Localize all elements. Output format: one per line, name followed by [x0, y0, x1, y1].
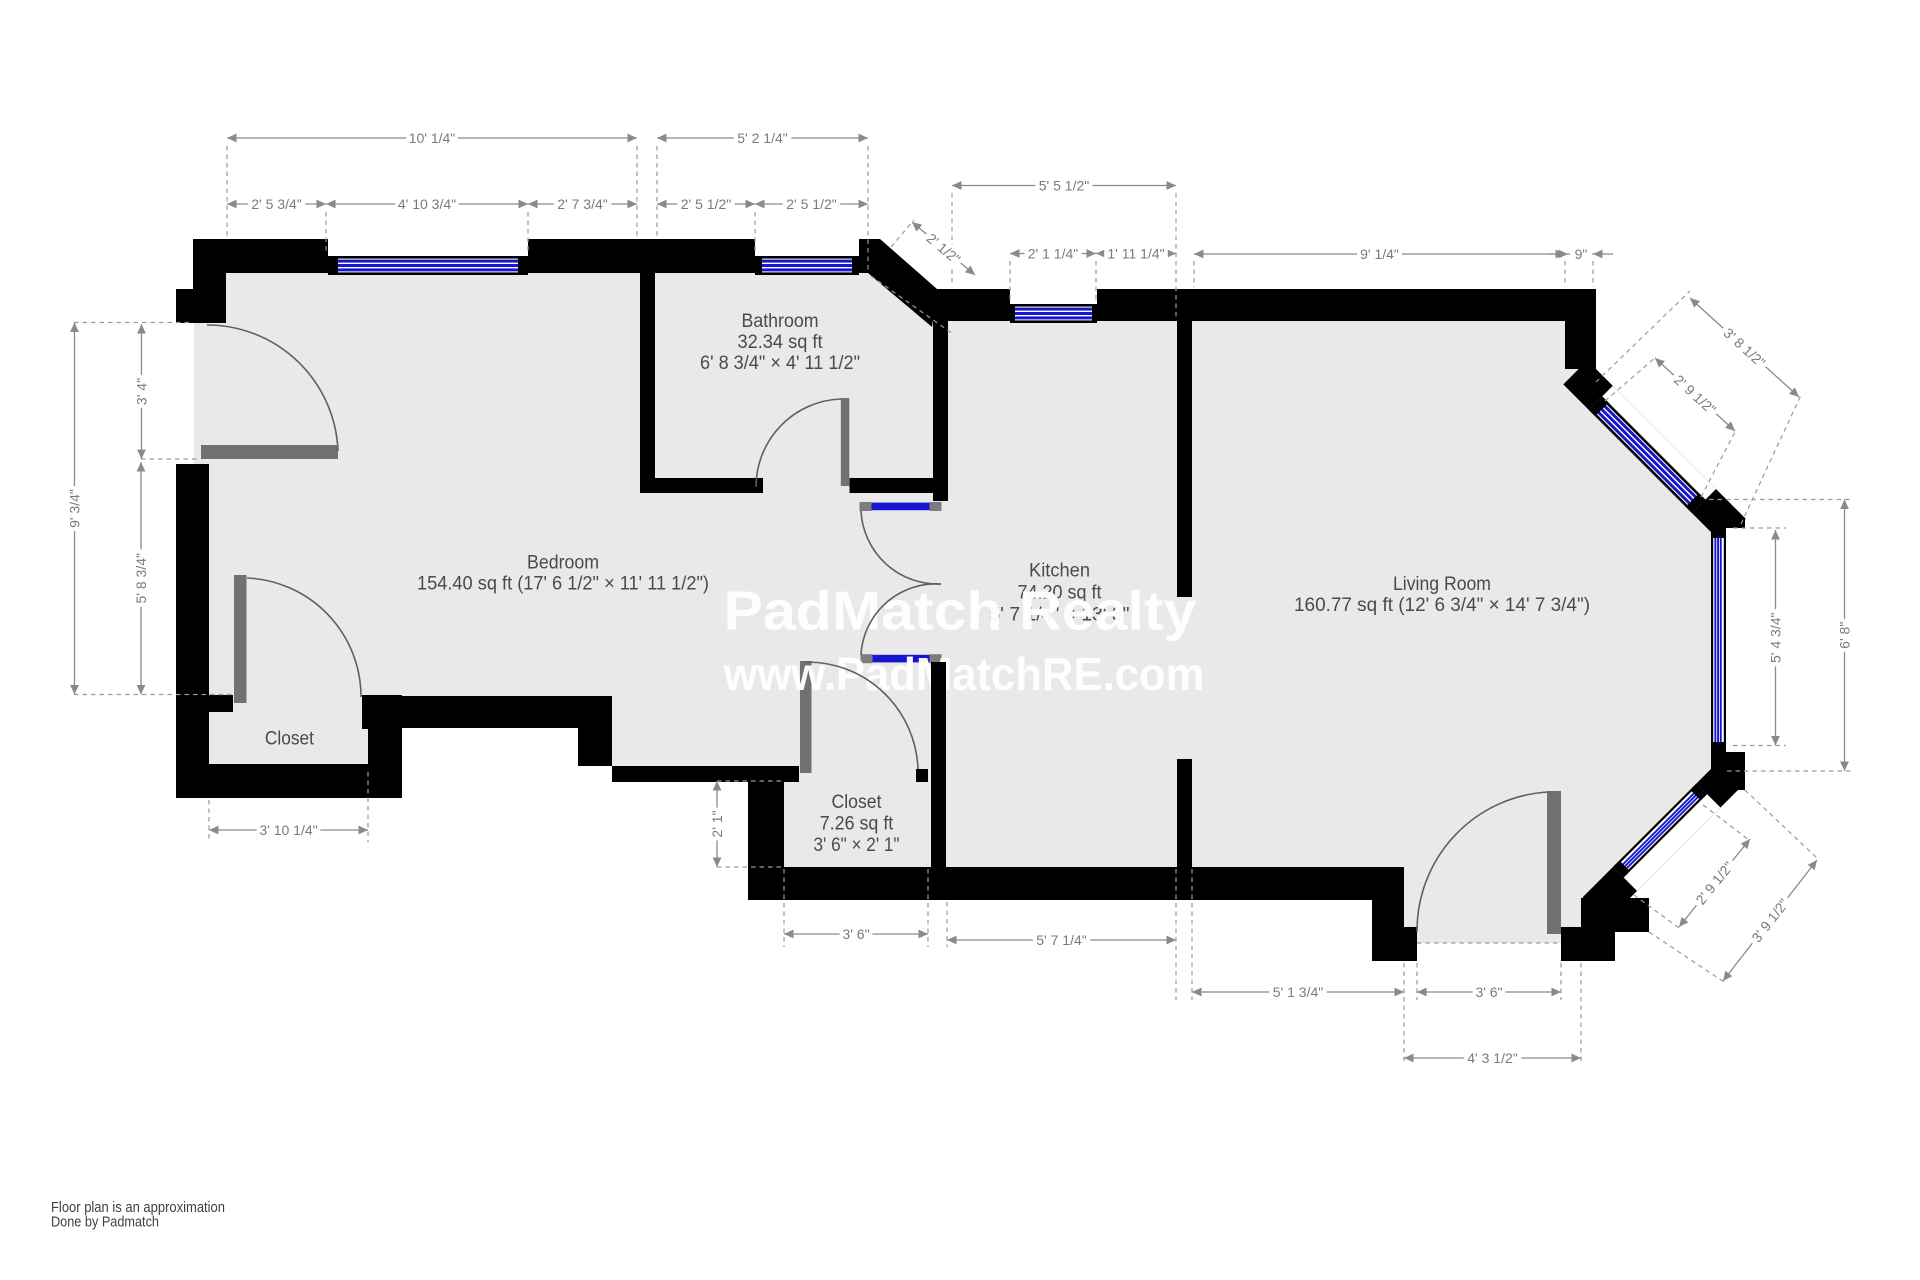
- svg-text:9": 9": [1575, 246, 1588, 262]
- svg-text:1' 11 1/4": 1' 11 1/4": [1107, 246, 1164, 262]
- svg-text:9' 3/4": 9' 3/4": [67, 489, 83, 528]
- svg-text:2' 7 3/4": 2' 7 3/4": [557, 196, 607, 212]
- svg-text:3' 6": 3' 6": [842, 926, 869, 942]
- svg-text:2' 5 1/2": 2' 5 1/2": [786, 196, 836, 212]
- svg-text:5' 4 3/4": 5' 4 3/4": [1768, 612, 1784, 662]
- svg-text:Closet: Closet: [265, 729, 315, 750]
- svg-text:Living Room: Living Room: [1393, 574, 1491, 595]
- svg-text:2' 5 3/4": 2' 5 3/4": [251, 196, 301, 212]
- svg-text:3' 10 1/4": 3' 10 1/4": [259, 822, 317, 838]
- svg-text:www.PadMatchRE.com: www.PadMatchRE.com: [723, 648, 1205, 700]
- svg-text:Kitchen: Kitchen: [1029, 561, 1090, 582]
- svg-text:160.77 sq ft (12' 6 3/4" × 14': 160.77 sq ft (12' 6 3/4" × 14' 7 3/4"): [1294, 595, 1590, 616]
- svg-text:6' 8": 6' 8": [1837, 622, 1853, 649]
- svg-text:PadMatch Realty: PadMatch Realty: [724, 580, 1197, 642]
- svg-text:5' 8 3/4": 5' 8 3/4": [133, 553, 149, 603]
- svg-text:5' 1 3/4": 5' 1 3/4": [1273, 984, 1323, 1000]
- svg-text:3' 6" × 2' 1": 3' 6" × 2' 1": [814, 835, 900, 856]
- svg-text:5' 5 1/2": 5' 5 1/2": [1039, 178, 1089, 194]
- svg-text:9' 1/4": 9' 1/4": [1360, 246, 1399, 262]
- svg-text:7.26 sq ft: 7.26 sq ft: [820, 814, 894, 835]
- svg-text:Bathroom: Bathroom: [742, 311, 819, 332]
- svg-text:154.40 sq ft (17' 6 1/2" × 11': 154.40 sq ft (17' 6 1/2" × 11' 11 1/2"): [417, 574, 709, 595]
- svg-text:4' 3 1/2": 4' 3 1/2": [1467, 1050, 1517, 1066]
- svg-text:Done by Padmatch: Done by Padmatch: [51, 1213, 159, 1230]
- svg-text:Bedroom: Bedroom: [527, 553, 599, 574]
- svg-text:5' 2 1/4": 5' 2 1/4": [737, 130, 787, 146]
- svg-text:Closet: Closet: [832, 792, 883, 813]
- svg-text:6' 8 3/4" × 4' 11 1/2": 6' 8 3/4" × 4' 11 1/2": [700, 353, 860, 374]
- svg-text:4' 10 3/4": 4' 10 3/4": [398, 196, 456, 212]
- svg-text:2' 1": 2' 1": [709, 810, 725, 837]
- svg-text:3' 6": 3' 6": [1475, 984, 1502, 1000]
- svg-text:3' 4": 3' 4": [134, 378, 150, 405]
- svg-text:2' 1 1/4": 2' 1 1/4": [1028, 246, 1078, 262]
- svg-text:32.34 sq ft: 32.34 sq ft: [738, 332, 824, 353]
- svg-text:5' 7 1/4": 5' 7 1/4": [1036, 932, 1086, 948]
- svg-text:10' 1/4": 10' 1/4": [409, 130, 456, 146]
- svg-text:2' 5 1/2": 2' 5 1/2": [681, 196, 731, 212]
